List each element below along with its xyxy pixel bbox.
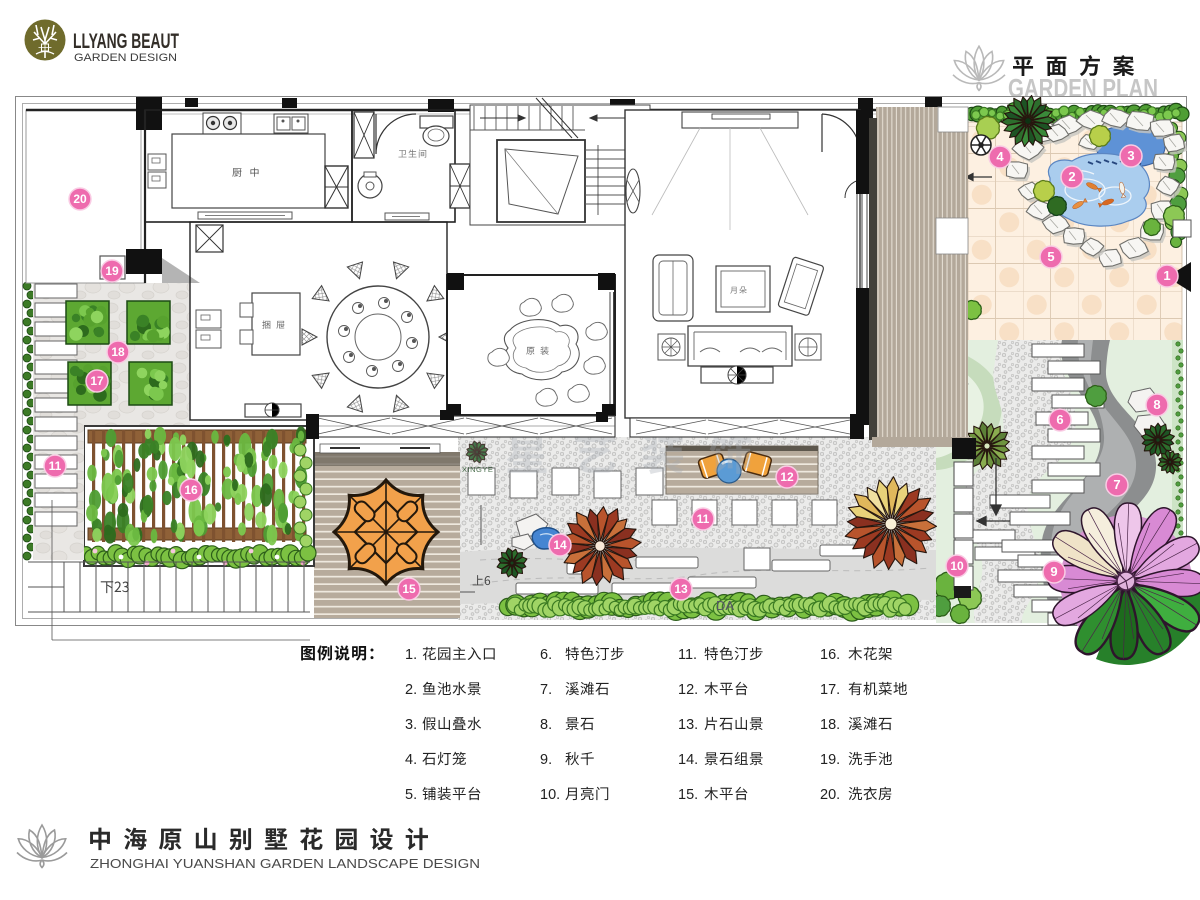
svg-text:18: 18: [111, 345, 125, 359]
svg-text:8: 8: [1153, 397, 1160, 412]
svg-text:2: 2: [1068, 169, 1075, 184]
svg-text:12.: 12.: [678, 682, 698, 698]
svg-text:13: 13: [674, 582, 688, 596]
svg-text:DA: DA: [716, 598, 734, 613]
svg-text:11.: 11.: [678, 647, 697, 663]
svg-text:17.: 17.: [820, 682, 840, 698]
svg-text:GARDEN DESIGN: GARDEN DESIGN: [74, 52, 177, 64]
svg-text:5: 5: [1047, 249, 1054, 264]
svg-text:3: 3: [1127, 148, 1134, 163]
svg-text:20.: 20.: [820, 787, 840, 803]
svg-text:13.: 13.: [678, 717, 698, 733]
svg-text:19: 19: [105, 264, 119, 278]
svg-text:11: 11: [49, 459, 62, 473]
svg-text:9: 9: [1050, 564, 1057, 579]
svg-text:2.: 2.: [405, 682, 417, 698]
svg-text:5.: 5.: [405, 787, 417, 803]
svg-text:9.: 9.: [540, 752, 552, 768]
svg-text:XINGYE: XINGYE: [462, 465, 493, 474]
svg-text:10: 10: [950, 559, 964, 573]
svg-text:14: 14: [553, 538, 567, 552]
svg-text:7: 7: [1113, 477, 1120, 492]
svg-text:20: 20: [73, 192, 87, 206]
svg-text:19.: 19.: [820, 752, 840, 768]
svg-text:1.: 1.: [405, 647, 417, 663]
svg-text:15.: 15.: [678, 787, 698, 803]
svg-text:4.: 4.: [405, 752, 417, 768]
svg-text:7.: 7.: [540, 682, 552, 698]
svg-text:6: 6: [1056, 412, 1063, 427]
svg-text:16: 16: [184, 483, 198, 497]
svg-text:1: 1: [1163, 268, 1170, 283]
svg-text:12: 12: [780, 470, 794, 484]
svg-text:14.: 14.: [678, 752, 698, 768]
svg-text:6.: 6.: [540, 647, 552, 663]
svg-text:3.: 3.: [405, 717, 417, 733]
svg-text:10.: 10.: [540, 787, 560, 803]
svg-text:4: 4: [996, 149, 1004, 164]
svg-text:15: 15: [402, 582, 416, 596]
svg-text:11: 11: [697, 512, 710, 526]
svg-text:LLYANG BEAUT: LLYANG BEAUT: [73, 30, 179, 53]
svg-text:ZHONGHAI YUANSHAN GARDEN LANDS: ZHONGHAI YUANSHAN GARDEN LANDSCAPE DESIG…: [90, 856, 480, 871]
svg-text:17: 17: [90, 374, 104, 388]
svg-text:16.: 16.: [820, 647, 840, 663]
svg-text:18.: 18.: [820, 717, 840, 733]
svg-text:8.: 8.: [540, 717, 552, 733]
